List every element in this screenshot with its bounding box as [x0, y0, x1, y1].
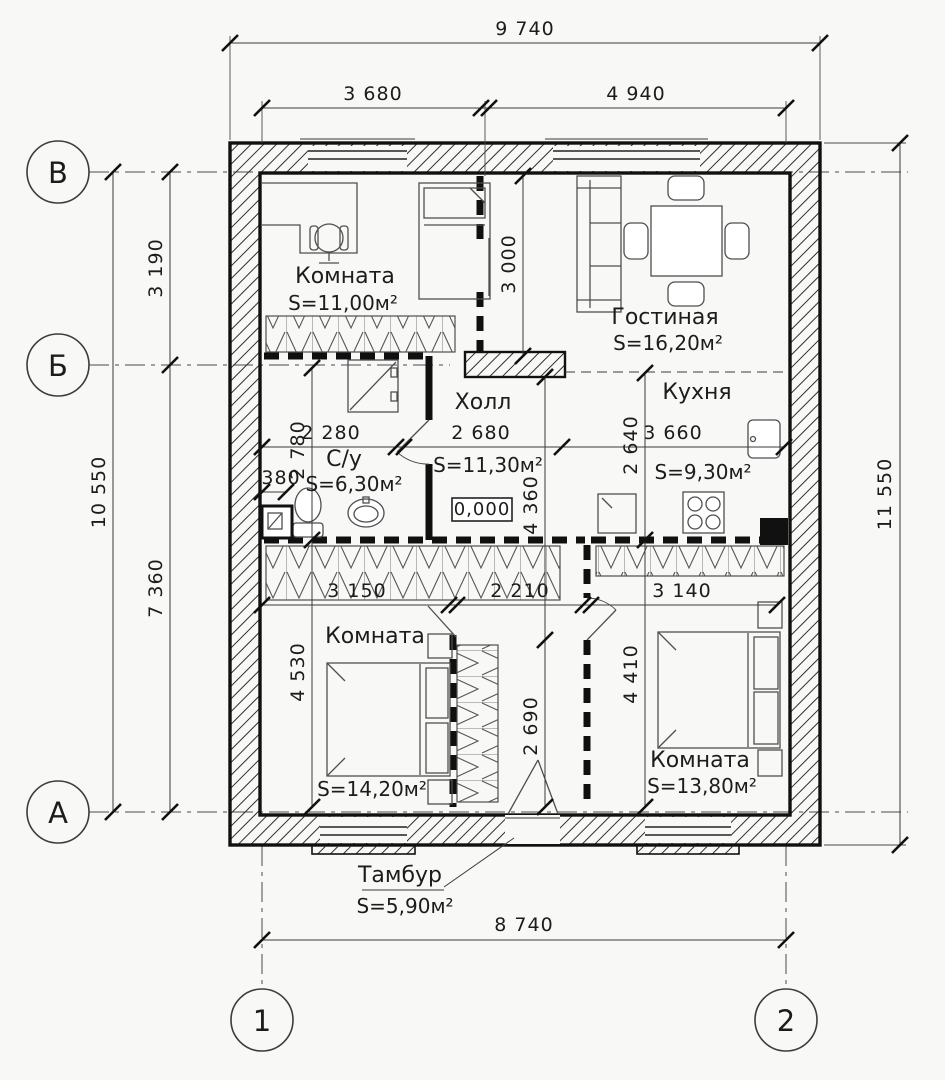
room-name-bedroom2: Комната [650, 748, 750, 773]
dim-kitchen-depth: 2 640 [620, 415, 642, 474]
room-area-tambour: S=5,90м² [356, 894, 453, 918]
floor-plan-drawing: 9 740 3 680 4 940 10 550 3 190 7 360 11 … [0, 0, 945, 1080]
office-chair [310, 224, 348, 263]
axis-label-col-1: 1 [253, 1004, 271, 1038]
room-name-tambour: Тамбур [357, 863, 442, 888]
wardrobe-tambour [457, 645, 498, 802]
dining-table [624, 176, 749, 306]
dim-hall-width: 2 680 [451, 422, 510, 444]
room-area-kitchen: S=9,30м² [654, 460, 751, 484]
axis-label-row-v: В [48, 156, 68, 190]
sofa [577, 176, 621, 312]
dim-bed2-depth: 4 410 [620, 644, 642, 703]
wardrobe-room1 [266, 316, 455, 352]
dim-hall-depth: 4 360 [520, 475, 542, 534]
dim-width-right: 4 940 [606, 83, 665, 105]
floor-plan-sheet: 9 740 3 680 4 940 10 550 3 190 7 360 11 … [0, 0, 945, 1080]
room-name-kitchen: Кухня [662, 380, 731, 405]
kitchen-sink [748, 420, 780, 458]
room-area-hall: S=11,30м² [433, 453, 543, 477]
axis-label-row-b: Б [48, 349, 68, 383]
room-area-room1: S=11,00м² [288, 291, 398, 315]
elevation-mark: 0,000 [452, 498, 512, 521]
dim-bath-width: 2 280 [301, 422, 360, 444]
room-area-living: S=16,20м² [613, 331, 723, 355]
shower [348, 360, 398, 412]
stove [683, 492, 724, 533]
wall-pier [760, 518, 788, 545]
room-name-living: Гостиная [611, 305, 718, 330]
room-area-bath: S=6,30м² [305, 472, 402, 496]
dim-right-total: 11 550 [874, 458, 896, 530]
dim-bath-depth: 2 780 [287, 420, 309, 479]
room-name-bedroom1: Комната [325, 624, 425, 649]
window-sill [312, 845, 415, 854]
dim-bed1-width: 3 150 [327, 580, 386, 602]
axis-label-col-2: 2 [777, 1004, 795, 1038]
washing-machine [262, 506, 292, 538]
dim-kitchen-width: 3 660 [643, 422, 702, 444]
room-name-bath: С/у [326, 447, 362, 472]
dim-left-upper: 3 190 [145, 238, 167, 297]
elevation-value: 0,000 [454, 499, 511, 520]
room-area-bedroom1: S=14,20м² [317, 777, 427, 801]
dim-left-total: 10 550 [88, 456, 110, 528]
dim-tambour-depth: 2 690 [520, 696, 542, 755]
dim-room1-depth: 3 000 [498, 234, 520, 293]
dim-tambour-width: 2 210 [490, 580, 549, 602]
dim-bed1-depth: 4 530 [287, 642, 309, 701]
dim-left-lower: 7 360 [145, 558, 167, 617]
fridge [598, 494, 636, 533]
room-name-room1: Комната [295, 264, 395, 289]
axis-label-row-a: А [48, 796, 68, 830]
bathroom-sink [348, 497, 384, 527]
room-area-bedroom2: S=13,80м² [647, 774, 757, 798]
dim-bed2-width: 3 140 [652, 580, 711, 602]
window-sill [637, 845, 739, 854]
dim-overall-width: 9 740 [495, 18, 554, 40]
dim-bottom-total: 8 740 [494, 914, 553, 936]
dim-width-left: 3 680 [343, 83, 402, 105]
room-name-hall: Холл [455, 390, 512, 415]
closet-kitchen [596, 546, 784, 576]
